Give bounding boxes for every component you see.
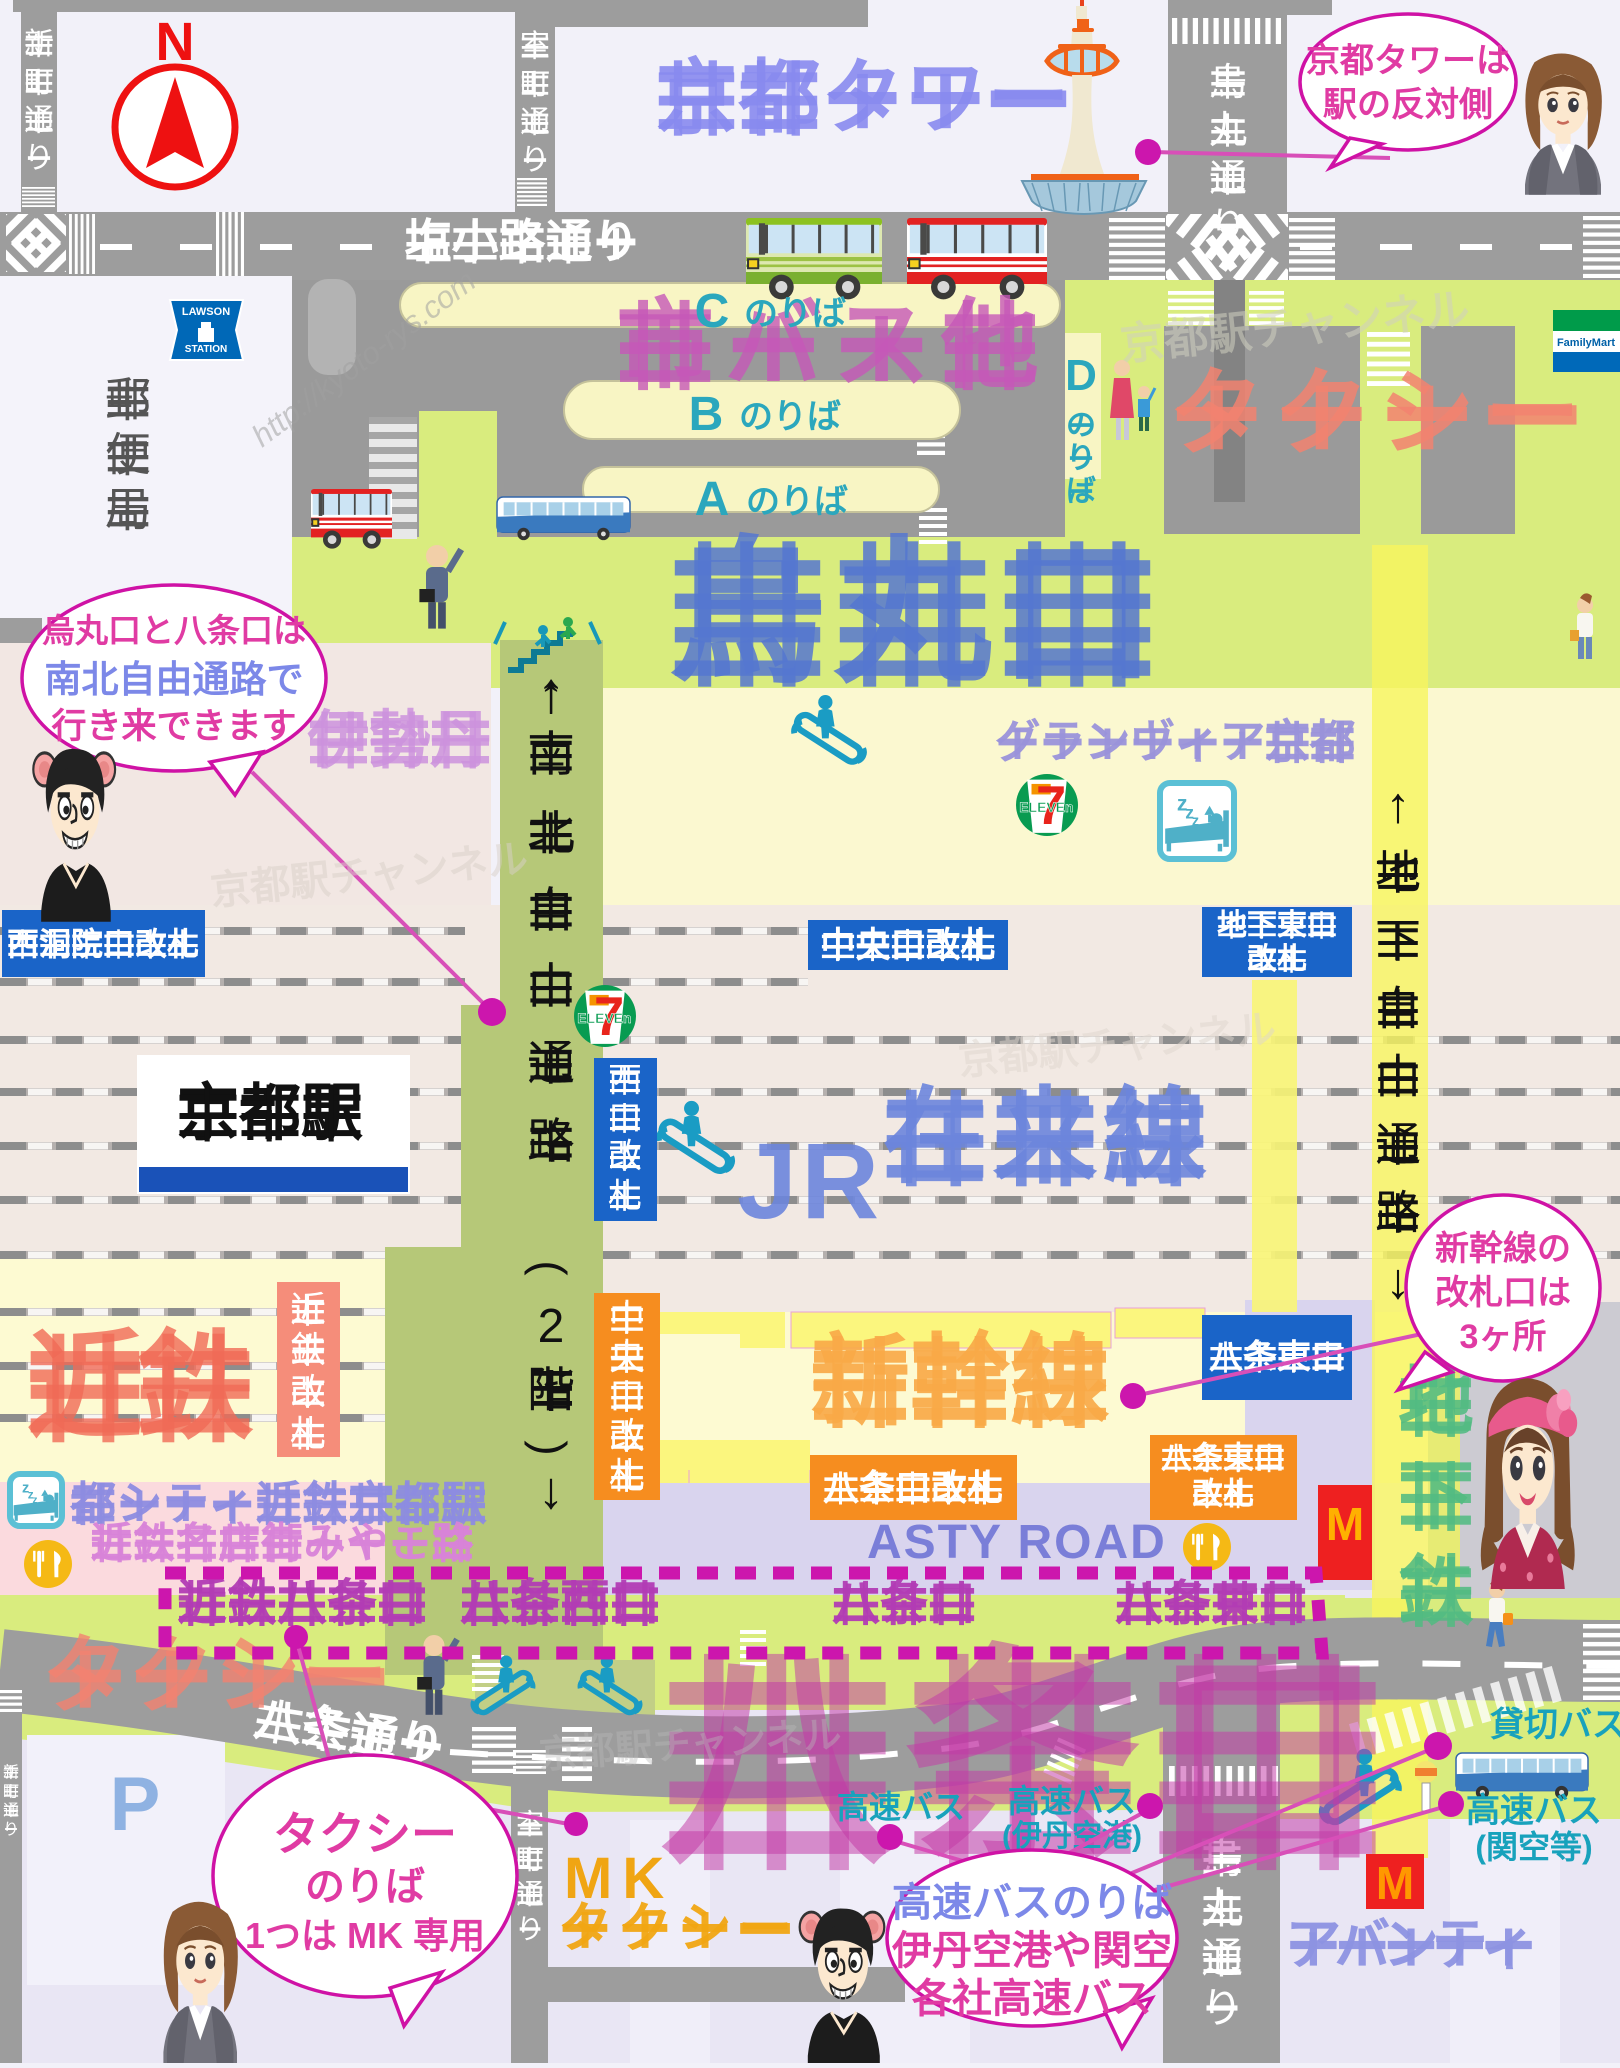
svg-text:ELEVEn: ELEVEn bbox=[1019, 799, 1073, 815]
svg-text:1つは MK 専用: 1つは MK 専用 bbox=[245, 1915, 485, 1956]
svg-text:ELEVEn: ELEVEn bbox=[577, 1010, 631, 1026]
svg-text:烏丸口と八条口は: 烏丸口と八条口は bbox=[42, 612, 306, 649]
svg-text:高速バス: 高速バス bbox=[837, 1789, 965, 1825]
svg-text:(関空等): (関空等) bbox=[1475, 1829, 1592, 1865]
svg-text:z: z bbox=[32, 1495, 37, 1506]
svg-text:のりば: のりば bbox=[744, 295, 846, 333]
svg-text:伊丹空港や関空: 伊丹空港や関空 bbox=[891, 1929, 1172, 1973]
svg-text:のりば: のりば bbox=[746, 483, 848, 521]
svg-text:(: ( bbox=[524, 1260, 576, 1276]
svg-text:高速バス: 高速バス bbox=[1008, 1783, 1136, 1819]
svg-text:↓: ↓ bbox=[538, 1462, 564, 1520]
svg-text:高速バス: 高速バス bbox=[1466, 1792, 1602, 1830]
svg-text:高速バスのりば: 高速バスのりば bbox=[892, 1881, 1172, 1925]
svg-text:ASTY ROAD: ASTY ROAD bbox=[867, 1516, 1167, 1569]
svg-text:3ヶ所: 3ヶ所 bbox=[1460, 1318, 1547, 1356]
svg-text:↑: ↑ bbox=[538, 667, 564, 725]
svg-text:N: N bbox=[156, 12, 195, 72]
svg-text:M: M bbox=[1326, 1498, 1364, 1550]
svg-text:B: B bbox=[689, 388, 724, 441]
svg-text:2: 2 bbox=[538, 1300, 565, 1353]
svg-text:D: D bbox=[1065, 351, 1097, 400]
svg-text:A: A bbox=[695, 473, 730, 526]
svg-text:JR: JR bbox=[737, 1120, 883, 1241]
svg-text:のりば: のりば bbox=[305, 1865, 425, 1909]
svg-text:南北自由通路で: 南北自由通路で bbox=[45, 659, 304, 700]
svg-text:z: z bbox=[1192, 814, 1199, 830]
svg-text:駅の反対側: 駅の反対側 bbox=[1323, 86, 1493, 124]
svg-text:): ) bbox=[524, 1440, 576, 1455]
svg-text:改札口は: 改札口は bbox=[1435, 1274, 1571, 1312]
svg-text:新幹線の: 新幹線の bbox=[1435, 1229, 1571, 1268]
svg-text:のりば: のりば bbox=[739, 398, 841, 436]
svg-text:↑: ↑ bbox=[1386, 777, 1411, 833]
svg-text:FamilyMart: FamilyMart bbox=[1557, 337, 1615, 349]
svg-text:STATION: STATION bbox=[185, 344, 227, 355]
svg-text:タクシー: タクシー bbox=[273, 1808, 457, 1860]
svg-text:行き来できます: 行き来できます bbox=[51, 707, 296, 746]
svg-text:C: C bbox=[695, 285, 730, 338]
svg-text:P: P bbox=[110, 1762, 161, 1847]
svg-text:貸切バス: 貸切バス bbox=[1490, 1706, 1620, 1744]
svg-text:京都タワーは: 京都タワーは bbox=[1306, 42, 1510, 80]
svg-text:LAWSON: LAWSON bbox=[182, 306, 230, 318]
svg-text:各社高速バス: 各社高速バス bbox=[912, 1977, 1152, 2021]
